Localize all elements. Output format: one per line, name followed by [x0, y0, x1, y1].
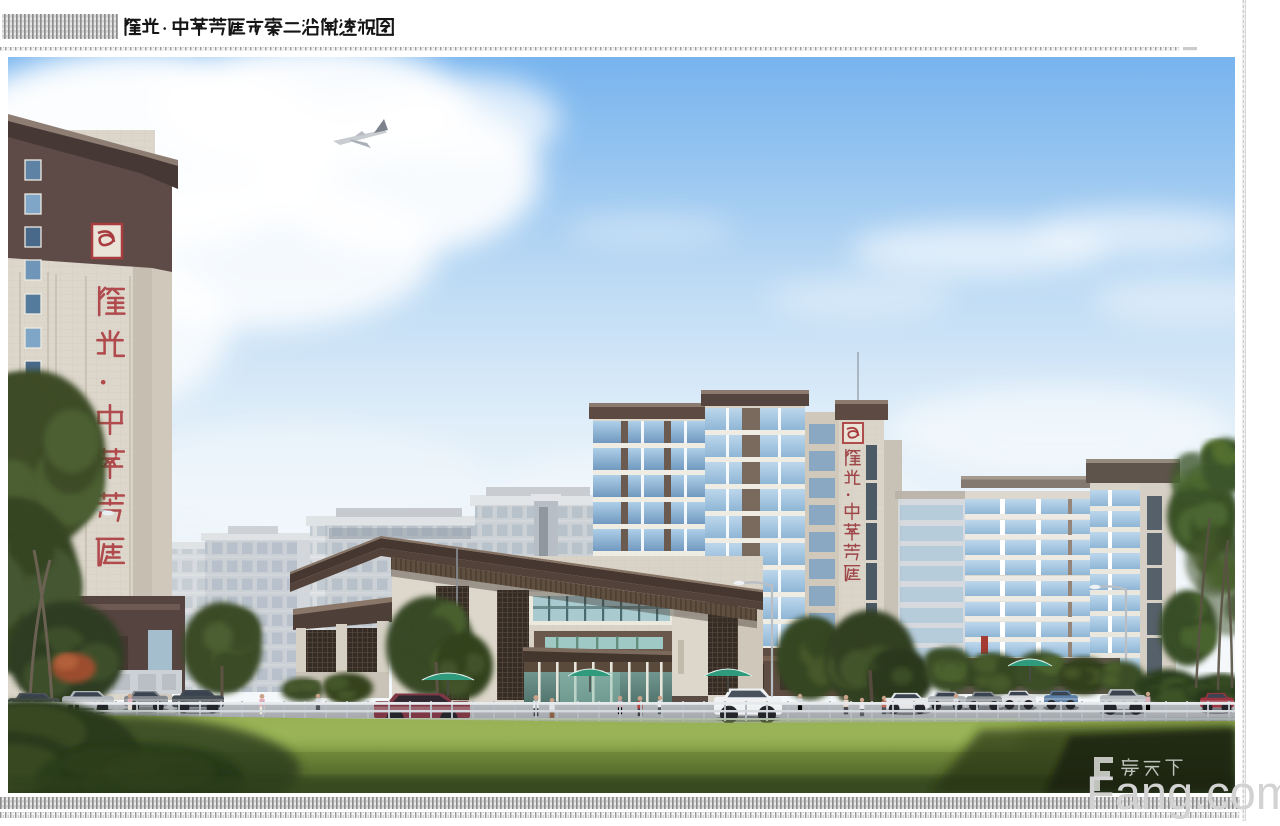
svg-text:Fang.com: Fang.com — [1086, 766, 1280, 819]
